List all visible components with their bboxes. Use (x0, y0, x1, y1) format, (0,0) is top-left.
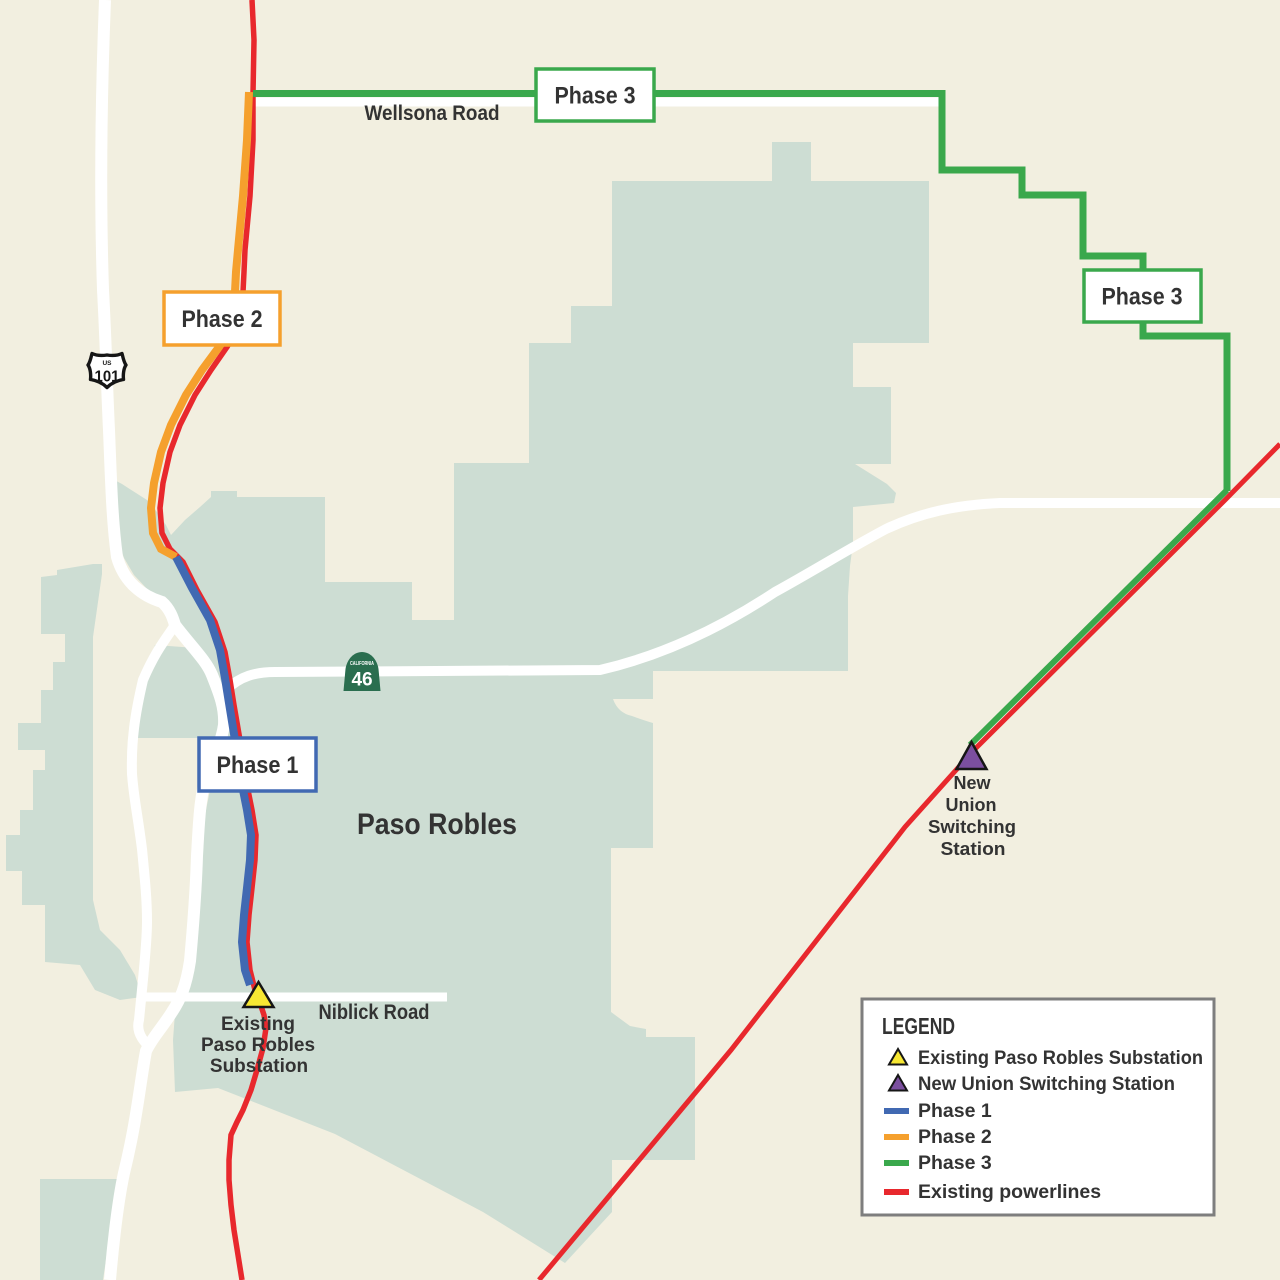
svg-text:Substation: Substation (210, 1056, 308, 1077)
svg-text:US: US (102, 360, 112, 367)
svg-text:Phase 3: Phase 3 (918, 1152, 992, 1174)
svg-text:Wellsona Road: Wellsona Road (365, 102, 500, 125)
svg-text:Phase 3: Phase 3 (555, 83, 636, 110)
svg-text:Existing: Existing (221, 1014, 295, 1035)
svg-text:Phase 1: Phase 1 (217, 752, 299, 779)
svg-text:Paso Robles: Paso Robles (357, 808, 517, 841)
svg-text:Paso Robles: Paso Robles (201, 1035, 315, 1056)
svg-text:New: New (953, 773, 991, 793)
svg-text:LEGEND: LEGEND (882, 1013, 955, 1039)
svg-text:Phase 2: Phase 2 (182, 306, 263, 333)
svg-text:Phase 1: Phase 1 (918, 1100, 992, 1122)
svg-text:101: 101 (95, 369, 120, 386)
svg-text:Existing Paso Robles Substatio: Existing Paso Robles Substation (918, 1047, 1203, 1069)
svg-text:46: 46 (351, 670, 372, 691)
svg-text:CALIFORNIA: CALIFORNIA (350, 661, 374, 667)
svg-text:Switching: Switching (928, 817, 1016, 837)
svg-text:Phase 3: Phase 3 (1102, 284, 1183, 311)
svg-text:New Union Switching Station: New Union Switching Station (918, 1073, 1175, 1095)
svg-text:Station: Station (941, 839, 1006, 859)
svg-text:Phase 2: Phase 2 (918, 1126, 992, 1148)
svg-text:Union: Union (946, 795, 997, 815)
svg-text:Existing powerlines: Existing powerlines (918, 1181, 1101, 1203)
svg-text:Niblick Road: Niblick Road (319, 1001, 430, 1024)
